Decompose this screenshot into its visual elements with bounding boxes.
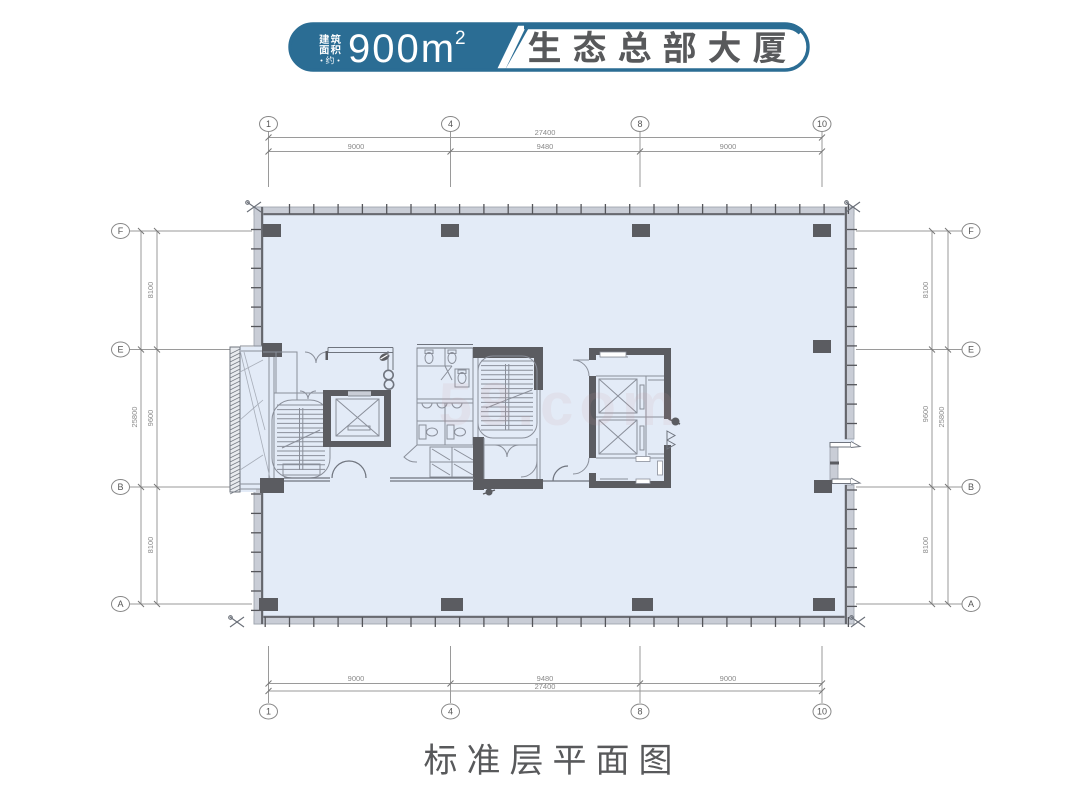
svg-text:27400: 27400: [535, 682, 556, 691]
svg-text:8100: 8100: [146, 282, 155, 299]
svg-text:A: A: [968, 599, 974, 609]
svg-text:9000: 9000: [348, 674, 365, 683]
svg-text:900m: 900m: [348, 27, 456, 71]
svg-text:1: 1: [266, 119, 271, 129]
svg-text:4: 4: [448, 119, 453, 129]
svg-text:1: 1: [266, 707, 271, 717]
svg-text:A: A: [117, 599, 123, 609]
svg-text:E: E: [968, 345, 974, 355]
svg-text:58.com: 58.com: [439, 371, 682, 438]
svg-text:B: B: [117, 482, 123, 492]
svg-text:8: 8: [637, 707, 642, 717]
svg-text:25800: 25800: [130, 407, 139, 428]
svg-text:8100: 8100: [921, 282, 930, 299]
svg-text:9600: 9600: [921, 406, 930, 423]
svg-text:E: E: [117, 345, 123, 355]
svg-text:8: 8: [637, 119, 642, 129]
svg-text:F: F: [968, 226, 974, 236]
svg-text:27400: 27400: [535, 128, 556, 137]
svg-text:B: B: [968, 482, 974, 492]
svg-text:25800: 25800: [937, 407, 946, 428]
svg-text:10: 10: [817, 707, 827, 717]
svg-text:F: F: [118, 226, 124, 236]
svg-text:9480: 9480: [537, 142, 554, 151]
svg-text:8100: 8100: [146, 537, 155, 554]
svg-text:8100: 8100: [921, 537, 930, 554]
svg-text:10: 10: [817, 119, 827, 129]
svg-text:9600: 9600: [146, 410, 155, 427]
svg-text:2: 2: [455, 28, 466, 49]
svg-text:9000: 9000: [348, 142, 365, 151]
svg-text:4: 4: [448, 707, 453, 717]
svg-text:9000: 9000: [720, 142, 737, 151]
svg-text:9000: 9000: [720, 674, 737, 683]
